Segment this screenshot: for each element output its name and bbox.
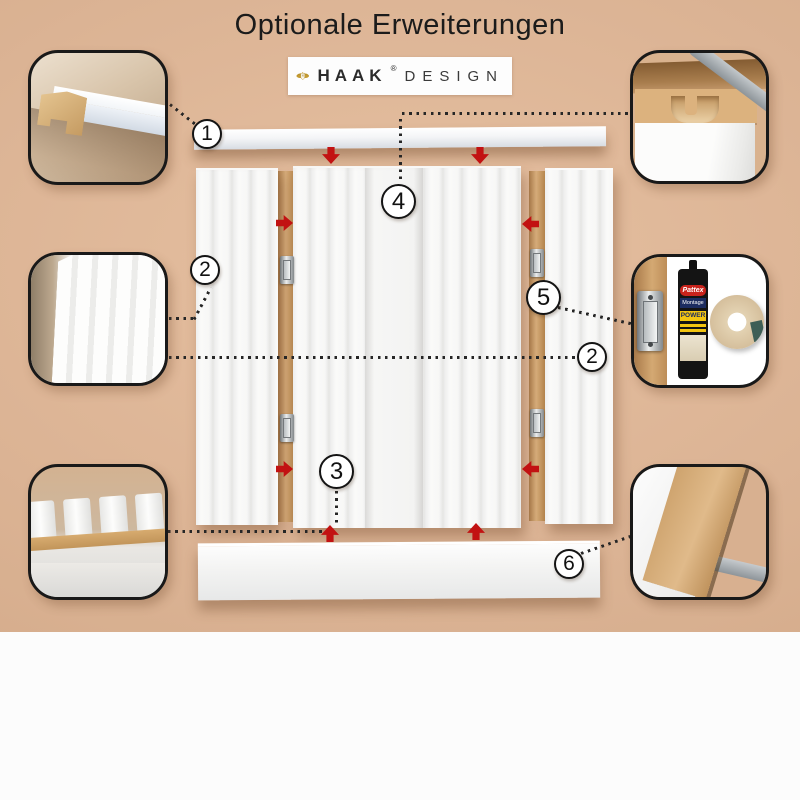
- label-image: [680, 335, 706, 361]
- page-title: Optionale Erweiterungen: [0, 9, 800, 42]
- glue-brand-label: Pattex: [680, 285, 706, 296]
- claw-clip: [280, 414, 294, 442]
- detail-photo-cable-channel: [630, 50, 769, 184]
- slat: [135, 493, 165, 533]
- dotted-connector: [169, 317, 195, 320]
- callout-5: 5: [526, 280, 561, 315]
- slat: [63, 498, 93, 538]
- adhesive-cartridge: Pattex Montage POWER: [678, 269, 708, 379]
- brand-name: HAAK: [317, 66, 386, 86]
- haak-emblem-icon: H: [296, 61, 309, 91]
- callout-2-left: 2: [190, 255, 220, 285]
- end-strip-left: [196, 168, 278, 525]
- clip-plate: [643, 301, 658, 343]
- claw-clip: [637, 291, 663, 351]
- brand-logo: H HAAK ® DESIGN: [288, 57, 512, 95]
- panel-front: [635, 123, 755, 184]
- channel-tab: [685, 96, 697, 115]
- callout-3: 3: [319, 454, 354, 489]
- screw: [648, 342, 653, 347]
- dotted-connector: [168, 530, 323, 533]
- mdf-top-edge: [635, 89, 757, 123]
- tape-patch: [750, 320, 764, 342]
- mounting-tape-roll: [710, 295, 764, 349]
- panel-profile: [28, 488, 168, 569]
- brand-suffix: DESIGN: [404, 68, 504, 85]
- claw-clip: [530, 249, 544, 277]
- detail-photo-fixing-alternatives: Pattex Montage POWER: [631, 254, 769, 388]
- callout-2-right: 2: [577, 342, 607, 372]
- claw-clip: [280, 256, 294, 284]
- callout-6: 6: [554, 549, 584, 579]
- detail-photo-end-strip: [28, 252, 168, 386]
- skirting-board: [198, 541, 600, 601]
- glue-line-label: Montage: [680, 298, 706, 308]
- dotted-connector: [399, 119, 402, 183]
- callout-1: 1: [192, 119, 222, 149]
- detail-photo-panel-cross-section: [28, 464, 168, 600]
- callout-4: 4: [381, 184, 416, 219]
- dotted-connector: [335, 491, 338, 525]
- cartridge-nozzle: [689, 260, 697, 269]
- foreground-surface: [31, 563, 168, 600]
- dotted-connector: [169, 356, 578, 359]
- claw-clip: [530, 409, 544, 437]
- glue-grade-label: POWER: [680, 311, 706, 321]
- screw: [648, 295, 653, 300]
- detail-photo-cover-strip: [28, 50, 168, 185]
- label-stripes: [680, 324, 706, 333]
- legend: 1 Abdeckleiste (für oberen Abschluss) 2 …: [0, 632, 800, 800]
- end-strip-corner: [51, 252, 168, 386]
- routed-channel: [671, 96, 719, 123]
- slat: [28, 500, 57, 540]
- infographic-canvas: Optionale Erweiterungen H HAAK ® DESIGN: [0, 0, 800, 800]
- dotted-connector: [402, 112, 631, 115]
- registered-mark: ®: [391, 64, 397, 73]
- slat: [99, 495, 129, 535]
- cable-channel-slat: [365, 168, 423, 528]
- detail-photo-skirting-cable: [630, 464, 769, 600]
